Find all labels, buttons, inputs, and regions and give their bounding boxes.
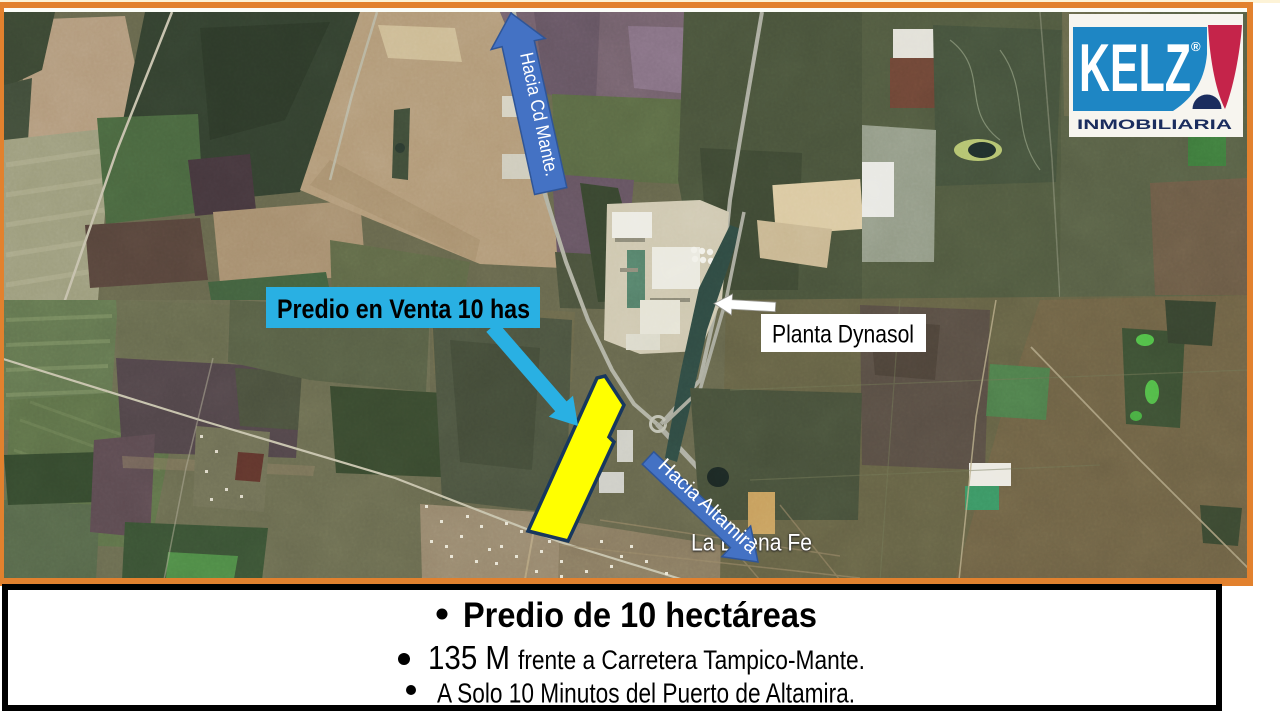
svg-text:Predio de 10 hectáreas: Predio de 10 hectáreas bbox=[463, 596, 817, 635]
svg-text:135 M: 135 M bbox=[428, 640, 510, 677]
svg-text:A Solo 10 Minutos del Puerto d: A Solo 10 Minutos del Puerto de Altamira… bbox=[437, 678, 855, 709]
svg-text:frente a Carretera Tampico-Man: frente a Carretera Tampico-Mante. bbox=[518, 645, 865, 675]
